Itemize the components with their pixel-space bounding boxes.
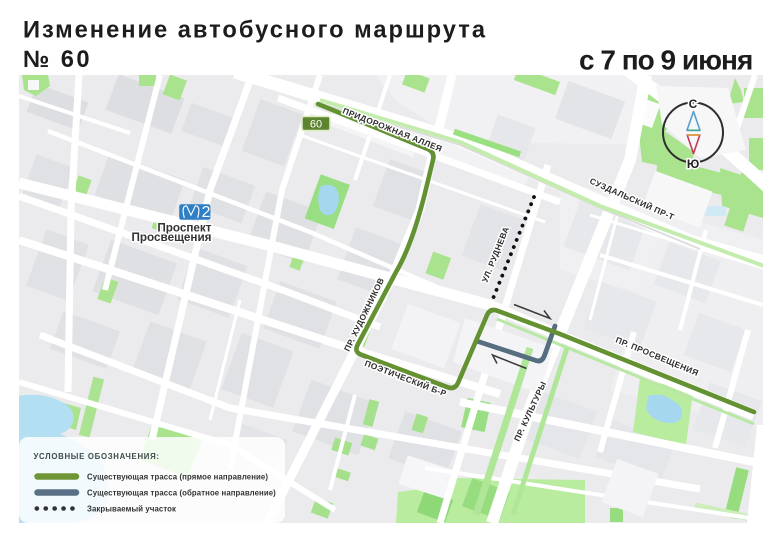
svg-text:2: 2 [202,204,211,221]
svg-text:Существующая трасса (обратное: Существующая трасса (обратное направлени… [87,489,276,498]
svg-text:Закрываемый участок: Закрываемый участок [87,505,176,514]
svg-text:Изменение автобусного маршрута: Изменение автобусного маршрута [23,18,486,44]
svg-text:№ 60: № 60 [23,47,90,73]
svg-text:Существующая трасса (прямое на: Существующая трасса (прямое направление) [87,473,268,482]
svg-text:Просвещения: Просвещения [132,231,212,244]
svg-text:с 7 по 9 июня: с 7 по 9 июня [579,45,753,76]
svg-text:Ю: Ю [687,157,699,171]
svg-text:60: 60 [310,119,322,131]
svg-text:УСЛОВНЫЕ ОБОЗНАЧЕНИЯ:: УСЛОВНЫЕ ОБОЗНАЧЕНИЯ: [34,452,160,461]
svg-text:С: С [689,97,698,111]
